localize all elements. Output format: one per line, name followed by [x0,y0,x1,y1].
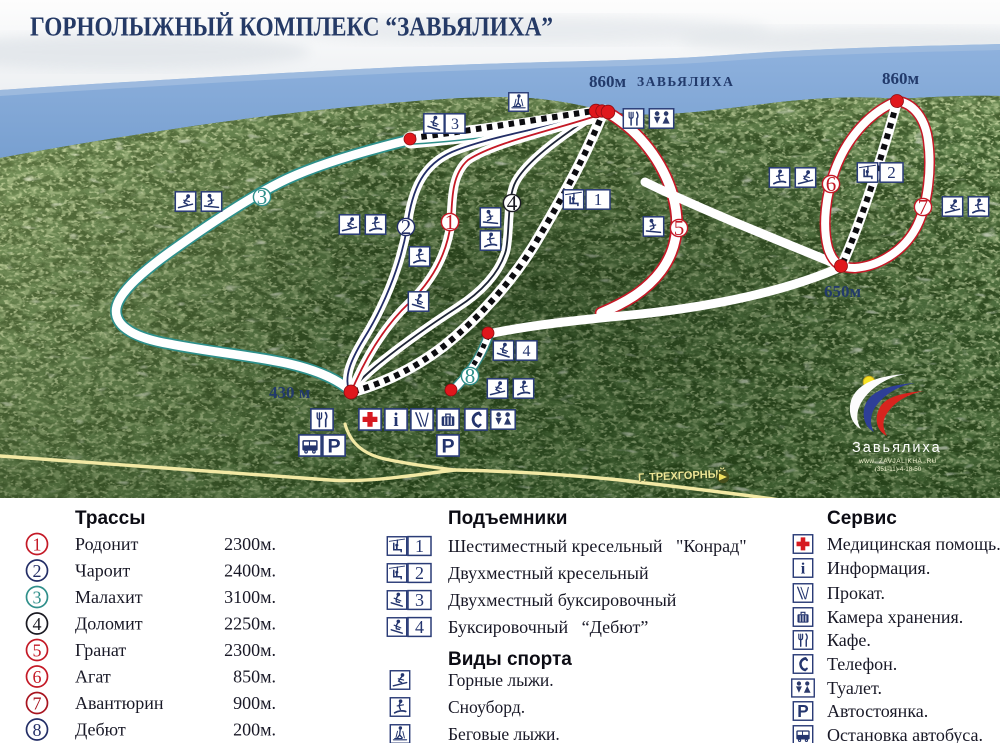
svg-text:ГОРНОЛЫЖНЫЙ КОМПЛЕКС “ЗАВЬЯЛИХ: ГОРНОЛЫЖНЫЙ КОМПЛЕКС “ЗАВЬЯЛИХА” [30,11,553,42]
svg-text:1: 1 [33,534,42,554]
svg-text:6: 6 [826,172,837,196]
svg-text:860м: 860м [589,72,627,91]
svg-text:Информация.: Информация. [827,558,930,578]
svg-text:Гранат: Гранат [75,640,126,660]
svg-text:2300м.: 2300м. [224,640,276,660]
svg-text:3100м.: 3100м. [224,587,276,607]
svg-text:1: 1 [445,210,456,234]
svg-text:3: 3 [415,590,424,610]
svg-text:Завьялиха: Завьялиха [852,440,942,456]
svg-text:2: 2 [401,215,412,239]
svg-text:1: 1 [415,536,424,556]
svg-text:ЗАВЬЯЛИХА: ЗАВЬЯЛИХА [637,74,734,89]
svg-text:2: 2 [33,561,42,581]
svg-text:Сервис: Сервис [827,508,897,529]
svg-text:Остановка автобуса.: Остановка автобуса. [827,725,983,743]
svg-text:Горные лыжи.: Горные лыжи. [448,670,554,690]
svg-text:650м: 650м [824,282,862,301]
svg-text:6: 6 [33,667,42,687]
svg-text:Буксировочный “Дебют”: Буксировочный “Дебют” [448,617,648,637]
svg-text:3: 3 [451,116,459,133]
svg-text:4: 4 [523,343,531,360]
svg-text:Двухместный кресельный: Двухместный кресельный [448,563,649,583]
svg-text:Подъемники: Подъемники [448,508,567,529]
svg-text:Туалет.: Туалет. [827,678,882,698]
svg-text:1: 1 [594,190,603,209]
svg-text:Малахит: Малахит [75,587,143,607]
svg-text:Сноуборд.: Сноуборд. [448,697,525,717]
svg-text:5: 5 [674,216,685,240]
svg-text:Медицинская помощь.: Медицинская помощь. [827,534,1000,554]
svg-text:Телефон.: Телефон. [827,654,897,674]
svg-text:3: 3 [257,185,268,209]
svg-text:Шестиместный кресельный "Кон: Шестиместный кресельный "Конрад" [448,536,747,556]
svg-text:Двухместный буксировочный: Двухместный буксировочный [448,590,677,610]
svg-text:Беговые лыжи.: Беговые лыжи. [448,724,560,743]
svg-text:8: 8 [465,364,476,388]
svg-text:7: 7 [33,693,42,713]
svg-text:(351-11)-4-18-50: (351-11)-4-18-50 [875,466,922,473]
svg-text:Доломит: Доломит [75,614,143,634]
svg-text:Виды спорта: Виды спорта [448,649,572,670]
svg-text:3: 3 [33,587,42,607]
svg-text:8: 8 [33,720,42,740]
svg-text:7: 7 [918,195,929,219]
svg-text:Кафе.: Кафе. [827,630,871,650]
svg-text:2250м.: 2250м. [224,614,276,634]
svg-text:900м.: 900м. [233,693,276,713]
svg-text:Дебют: Дебют [75,720,126,740]
svg-text:430 м: 430 м [269,383,311,402]
svg-text:5: 5 [33,640,42,660]
svg-text:2300м.: 2300м. [224,534,276,554]
svg-text:4: 4 [33,614,42,634]
svg-text:Автостоянка.: Автостоянка. [827,701,928,721]
svg-text:860м: 860м [882,69,920,88]
svg-text:Прокат.: Прокат. [827,583,885,603]
svg-text:200м.: 200м. [233,720,276,740]
svg-text:850м.: 850м. [233,667,276,687]
svg-text:2: 2 [415,563,424,583]
svg-text:Авантюрин: Авантюрин [75,693,164,713]
svg-text:2: 2 [887,163,896,182]
svg-text:Чароит: Чароит [75,561,130,581]
svg-text:2400м.: 2400м. [224,561,276,581]
svg-text:4: 4 [415,617,424,637]
svg-text:Агат: Агат [75,667,111,687]
svg-text:www. ZAVJALIKHA .RU: www. ZAVJALIKHA .RU [858,458,937,465]
svg-text:Родонит: Родонит [75,534,138,554]
svg-text:Камера хранения.: Камера хранения. [827,607,963,627]
svg-text:Трассы: Трассы [75,508,145,529]
svg-text:4: 4 [507,191,518,215]
